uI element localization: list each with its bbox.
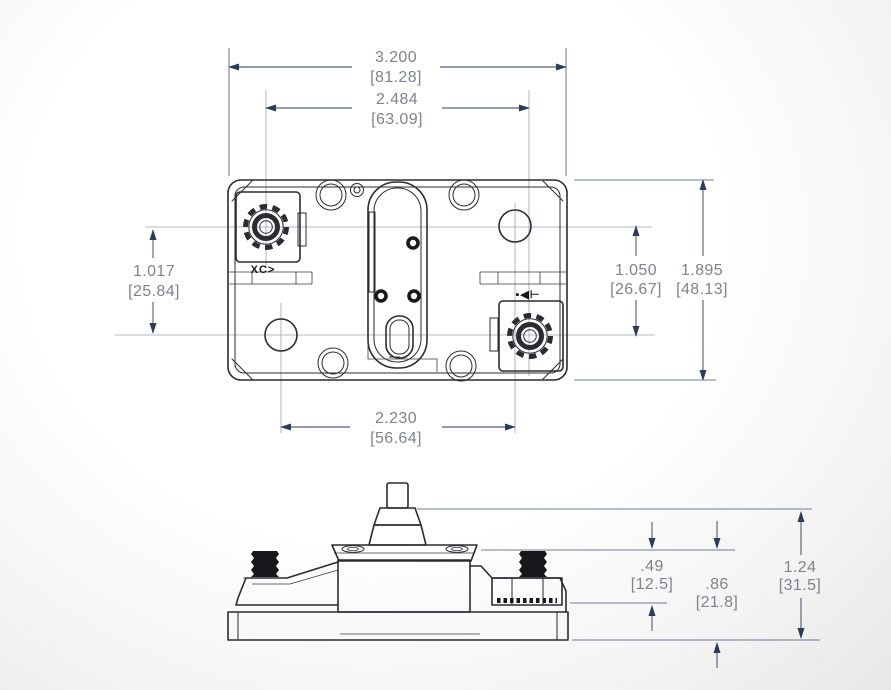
dim-overall-height: 1.895 [48.13] <box>574 180 728 380</box>
case-seam-right <box>480 272 566 284</box>
case-screws <box>316 180 479 381</box>
breaker-housing <box>338 560 470 612</box>
dim-overall-width-inches: 3.200 <box>375 49 417 66</box>
dim-stud-spacing: 2.484 [63.09] <box>266 91 529 128</box>
slot-pin <box>409 291 419 301</box>
dim-flange-height-mm: [12.5] <box>631 576 673 593</box>
dim-hole-spacing-inches: 2.230 <box>375 410 417 427</box>
dim-side-overall-height-inches: 1.24 <box>784 559 817 576</box>
side-extension-lines <box>417 509 820 640</box>
slot-pin <box>408 238 418 248</box>
dim-side-overall-height-mm: [31.5] <box>779 577 821 594</box>
flange-screw-left <box>342 546 364 553</box>
terminal-right: ▪◀⊢ <box>490 288 563 371</box>
terminal-right-pad <box>499 301 563 371</box>
dim-side-overall-height: 1.24 [31.5] <box>779 512 821 638</box>
terminal-right-tab <box>490 318 498 351</box>
dim-overall-height-inches: 1.895 <box>681 262 723 279</box>
right-stud-threads <box>519 551 547 577</box>
reset-lever-slot <box>368 182 437 372</box>
side-view: .49 [12.5] .86 [21.8] 1.24 [31.5] <box>228 483 821 668</box>
terminal-left: XC> <box>236 192 306 276</box>
top-flange <box>332 545 477 561</box>
left-stud-threads <box>251 551 279 577</box>
dim-body-height-mm: [21.8] <box>696 594 738 611</box>
dim-body-height-inches: .86 <box>705 576 728 593</box>
terminal-right-marking: ▪◀⊢ <box>516 288 541 301</box>
left-terminal-side <box>236 551 338 605</box>
dim-right-height-inches: 1.050 <box>615 262 657 279</box>
dim-body-height: .86 [21.8] <box>696 521 738 668</box>
dim-stud-spacing-mm: [63.09] <box>371 111 423 128</box>
dim-flange-height: .49 [12.5] <box>631 522 673 631</box>
dim-overall-height-mm: [48.13] <box>676 281 728 298</box>
dim-left-height: 1.017 [25.84] <box>128 230 180 333</box>
dim-left-height-mm: [25.84] <box>128 283 180 300</box>
terminal-left-marking: XC> <box>251 264 276 276</box>
dim-left-height-inches: 1.017 <box>133 263 175 280</box>
dim-hole-spacing: 2.230 [56.64] <box>281 410 515 447</box>
flange-screw-right <box>446 546 468 553</box>
reset-button <box>369 483 426 545</box>
spring-clip-detail <box>351 184 364 197</box>
right-terminal-side <box>470 551 566 612</box>
dim-stud-spacing-inches: 2.484 <box>376 91 418 108</box>
drawing-canvas: XC> ▪◀⊢ <box>0 0 891 690</box>
base-plate <box>228 612 568 640</box>
terminal-right-nut <box>510 316 551 357</box>
dim-hole-spacing-mm: [56.64] <box>370 430 422 447</box>
slot-pin <box>376 291 386 301</box>
reset-button-stem <box>387 483 408 508</box>
centerlines <box>115 90 655 433</box>
dim-right-height: 1.050 [26.67] <box>610 226 662 336</box>
dim-overall-width-mm: [81.28] <box>370 69 422 86</box>
top-view: XC> ▪◀⊢ <box>115 48 728 447</box>
dim-right-height-mm: [26.67] <box>610 281 662 298</box>
technical-drawing: XC> ▪◀⊢ <box>0 0 891 690</box>
dim-flange-height-inches: .49 <box>640 558 663 575</box>
